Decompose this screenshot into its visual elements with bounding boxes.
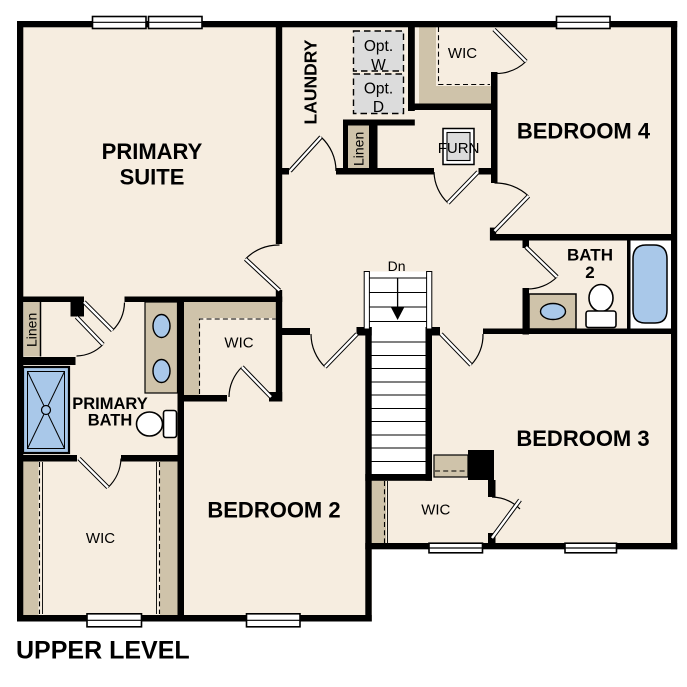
svg-text:BATH: BATH [567, 246, 613, 265]
svg-text:BATH: BATH [88, 412, 133, 430]
svg-text:SUITE: SUITE [120, 165, 185, 190]
svg-text:LAUNDRY: LAUNDRY [301, 39, 321, 124]
svg-text:BEDROOM 4: BEDROOM 4 [517, 119, 651, 144]
svg-text:D: D [373, 99, 384, 116]
svg-text:Opt.: Opt. [364, 81, 393, 98]
svg-text:Linen: Linen [24, 313, 40, 347]
svg-text:BEDROOM 3: BEDROOM 3 [516, 426, 649, 451]
svg-text:FURN: FURN [438, 140, 480, 157]
svg-text:Opt.: Opt. [364, 38, 393, 55]
svg-text:W: W [371, 57, 386, 74]
svg-text:WIC: WIC [224, 334, 253, 351]
svg-text:BEDROOM 2: BEDROOM 2 [207, 498, 340, 523]
svg-text:UPPER LEVEL: UPPER LEVEL [16, 637, 190, 665]
svg-text:PRIMARY: PRIMARY [102, 139, 203, 164]
svg-text:PRIMARY: PRIMARY [72, 395, 147, 413]
svg-text:Dn: Dn [388, 258, 406, 274]
svg-text:Linen: Linen [351, 132, 367, 166]
svg-text:WIC: WIC [86, 530, 115, 547]
svg-text:WIC: WIC [421, 502, 450, 519]
svg-text:WIC: WIC [448, 45, 477, 62]
svg-text:2: 2 [585, 263, 594, 282]
